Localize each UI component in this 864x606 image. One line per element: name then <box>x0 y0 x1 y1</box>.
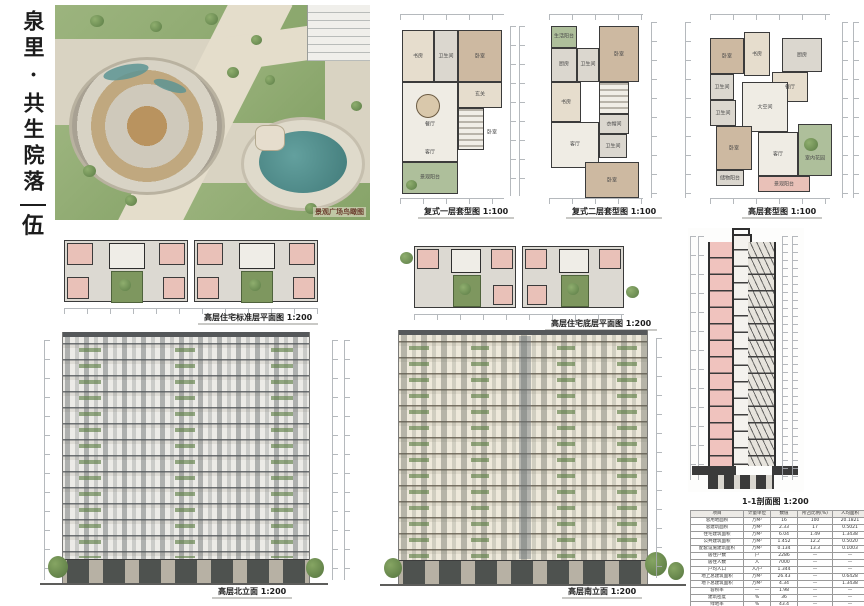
room <box>599 249 621 269</box>
room <box>525 249 547 269</box>
elevation-south <box>398 330 648 585</box>
table-cell: % <box>744 602 771 606</box>
tree <box>83 165 96 177</box>
section-caption: 1-1剖面图 1:200 <box>742 496 809 507</box>
table-cell: 人/户 <box>744 567 771 574</box>
table-cell: 万M² <box>744 546 771 553</box>
ground-line <box>40 583 328 585</box>
table-cell: 43.4 <box>771 602 798 606</box>
dining-table <box>416 94 440 118</box>
title-divider <box>20 204 46 206</box>
unit-block <box>522 246 624 308</box>
table-cell: 26.43 <box>771 574 798 581</box>
unit-plan-duplex1: 书房 卫生间 卧室 餐厅 玄关 卧室 客厅 景观阳台 <box>392 12 524 204</box>
tree <box>406 180 417 190</box>
table-header: 项目 <box>691 511 744 518</box>
room <box>159 243 185 265</box>
board-title: 泉里·共生院落 伍 <box>10 8 56 240</box>
dimension-rail <box>344 340 350 580</box>
table-cell: — <box>833 588 864 595</box>
table-row: 居住人数人7000—— <box>691 560 864 567</box>
dimension-rail <box>782 236 788 480</box>
table-cell: — <box>798 581 833 588</box>
table-cell: 配套设施建筑面积 <box>691 546 744 553</box>
table-row: 户均人口人/户1.344—— <box>691 567 864 574</box>
room-label: 卫生间 <box>605 143 620 150</box>
table-cell: — <box>833 567 864 574</box>
room-label: 书房 <box>752 51 762 58</box>
room-label: 客厅 <box>773 151 783 158</box>
tree <box>400 252 413 264</box>
plan-caption: 高层套型图 1:100 <box>742 206 822 217</box>
table-cell: 12.2 <box>798 539 833 546</box>
room-label: 玄关 <box>475 91 485 98</box>
tree <box>306 558 324 578</box>
table-header: 所占比例(%) <box>798 511 833 518</box>
room-label: 卧室 <box>475 53 485 60</box>
table-cell: 0.5021 <box>833 525 864 532</box>
tree <box>249 279 261 291</box>
tree <box>351 101 362 111</box>
room-label: 书房 <box>413 53 423 60</box>
table-cell: 户 <box>744 553 771 560</box>
table-cell: 1.344 <box>771 567 798 574</box>
table-row: 绿地率%43.4—— <box>691 602 864 606</box>
table-cell: 地上总建筑面积 <box>691 574 744 581</box>
table-cell: 17 <box>798 525 833 532</box>
indicator-table: 项目 计量单位 数值 所占比例(%) 人均面积 总用地面积万M²1610020.… <box>690 510 864 606</box>
table-header-row: 项目 计量单位 数值 所占比例(%) 人均面积 <box>691 511 864 518</box>
table-cell: 0.134 <box>771 546 798 553</box>
room-label: 卫生间 <box>438 53 453 60</box>
room-label: 卫生间 <box>580 61 595 68</box>
room <box>197 277 219 299</box>
dimension-rail <box>685 22 691 198</box>
room-label: 客厅 <box>425 149 435 156</box>
table-row: 建筑密度%36—— <box>691 595 864 602</box>
tree <box>668 562 684 580</box>
dimension-rail <box>519 26 525 196</box>
room-label: 大空间 <box>757 104 772 111</box>
aerial-view: 景观广场鸟瞰图 <box>55 5 370 220</box>
table-cell: 16 <box>771 518 798 525</box>
room-label: 景观阳台 <box>420 174 440 181</box>
table-cell: 居住人数 <box>691 560 744 567</box>
plant-column <box>79 338 101 558</box>
unit-block <box>64 240 188 302</box>
room <box>163 277 185 299</box>
tree <box>48 556 68 578</box>
table-header: 数值 <box>771 511 798 518</box>
table-cell: 居住户数 <box>691 553 744 560</box>
tree <box>265 75 275 85</box>
table-cell: 6.04 <box>771 532 798 539</box>
roof-parapet <box>732 228 750 236</box>
dimension-rail <box>400 14 504 20</box>
section-units <box>708 242 734 466</box>
table-row: 地上总建筑面积万M²26.43—0.6428 <box>691 574 864 581</box>
tree <box>251 35 262 45</box>
table-row: 居住户数户2286—— <box>691 553 864 560</box>
foundation-piers <box>708 475 774 489</box>
board-title-number: 伍 <box>22 208 44 240</box>
aerial-caption: 景观广场鸟瞰图 <box>313 207 366 217</box>
room-label: 餐厅 <box>425 121 435 128</box>
table-cell: 万M² <box>744 525 771 532</box>
table-cell: 建筑密度 <box>691 595 744 602</box>
tree <box>384 558 402 578</box>
dimension-rail <box>332 340 338 580</box>
table-cell: 1.452 <box>771 539 798 546</box>
table-cell: 地下总建筑面积 <box>691 581 744 588</box>
dimension-rail <box>842 22 848 198</box>
table-row: 住宅建筑面积万M²6.041.491.3438 <box>691 532 864 539</box>
room <box>293 277 315 299</box>
room-label: 衣帽间 <box>606 121 621 128</box>
tree <box>459 283 471 295</box>
board-title-text: 泉里·共生院落 <box>18 10 48 196</box>
room-label: 客厅 <box>570 141 580 148</box>
table-cell: 0.6428 <box>833 574 864 581</box>
plant-column <box>471 336 489 559</box>
room-label: 卧室 <box>487 129 497 136</box>
table-cell: 1.3438 <box>833 532 864 539</box>
elevation-north <box>62 332 310 584</box>
table-header: 计量单位 <box>744 511 771 518</box>
room <box>197 243 223 265</box>
tree <box>227 67 239 78</box>
plan-caption: 高层住宅底层平面图 1:200 <box>545 318 657 329</box>
unit-plan-duplex2: 生活阳台 厨房 卫生间 卧室 书房 客厅 衣帽间 卫生间 卧室 <box>545 12 695 204</box>
tree <box>150 21 162 32</box>
table-cell: 1.98 <box>771 588 798 595</box>
table-cell: 万M² <box>744 581 771 588</box>
stairs <box>458 108 484 150</box>
table-cell: 容积率 <box>691 588 744 595</box>
table-cell: — <box>798 602 833 606</box>
dimension-rail <box>853 22 859 198</box>
dimension-rail <box>44 340 50 580</box>
unit-block <box>414 246 516 308</box>
elevation-roof <box>399 330 647 335</box>
room-label: 室内花园 <box>805 155 825 162</box>
dimension-rail <box>710 198 830 204</box>
room-label: 卧室 <box>729 145 739 152</box>
table-cell: 公共建筑面积 <box>691 539 744 546</box>
foundation <box>692 466 736 475</box>
unit-block <box>194 240 318 302</box>
stair-core <box>451 249 481 273</box>
table-cell: — <box>833 553 864 560</box>
table-cell: 绿地率 <box>691 602 744 606</box>
stairs <box>599 82 629 114</box>
room <box>417 249 439 269</box>
room-label: 餐厅 <box>785 84 795 91</box>
dimension-rail <box>400 198 504 204</box>
table-cell: — <box>798 574 833 581</box>
table-row: 总建筑面积万M²2.33170.5021 <box>691 525 864 532</box>
table-cell: 7000 <box>771 560 798 567</box>
table-cell: 总建筑面积 <box>691 525 744 532</box>
room-label: 卫生间 <box>715 110 730 117</box>
room-label: 生活阳台 <box>554 33 574 40</box>
table-cell: 0.5020 <box>833 539 864 546</box>
table-cell: 万M² <box>744 532 771 539</box>
table-cell: 1.49 <box>798 532 833 539</box>
table-cell: — <box>833 602 864 606</box>
table-row: 公共建筑面积万M²1.45212.20.5020 <box>691 539 864 546</box>
room-label: 景观阳台 <box>774 181 794 188</box>
table-cell: — <box>798 595 833 602</box>
table-row: 总用地面积万M²1610020.1821 <box>691 518 864 525</box>
stair-core <box>559 249 589 273</box>
elevation-roof <box>63 332 309 337</box>
table-cell: 36 <box>771 595 798 602</box>
table-cell: 万M² <box>744 518 771 525</box>
table-cell: — <box>833 595 864 602</box>
plant-column <box>175 338 195 558</box>
table-cell: — <box>744 588 771 595</box>
room <box>67 277 89 299</box>
table-cell: 户均人口 <box>691 567 744 574</box>
room-label: 储物阳台 <box>720 175 740 182</box>
dimension-rail <box>656 338 662 578</box>
presentation-board: 泉里·共生院落 伍 景观广场鸟瞰图 <box>0 0 864 606</box>
stair-core-glass <box>519 336 531 559</box>
dimension-rail <box>510 26 516 196</box>
dimension-rail <box>549 14 643 20</box>
table-cell: 住宅建筑面积 <box>691 532 744 539</box>
table-cell: — <box>833 560 864 567</box>
dimension-rail <box>651 22 657 198</box>
elevation-base <box>63 559 309 584</box>
table-cell: 13.3 <box>798 546 833 553</box>
table-cell: 总用地面积 <box>691 518 744 525</box>
elevation-caption: 高层南立面 1:200 <box>562 586 642 597</box>
room-label: 卧室 <box>607 177 617 184</box>
plant-column <box>271 338 293 558</box>
plant-column <box>557 336 575 559</box>
plan-caption: 复式二层套型图 1:100 <box>566 206 662 217</box>
plan-caption: 复式一层套型图 1:100 <box>418 206 514 217</box>
elevation-base <box>399 560 647 585</box>
plan-caption: 高层住宅标准层平面图 1:200 <box>198 312 318 323</box>
section-drawing <box>688 228 804 492</box>
table-cell: 万M² <box>744 539 771 546</box>
elevation-caption: 高层北立面 1:200 <box>212 586 292 597</box>
dimension-rail <box>690 236 696 480</box>
table-cell: 100 <box>798 518 833 525</box>
table-cell: — <box>798 588 833 595</box>
table-row: 配套设施建筑面积万M²0.13413.30.1003 <box>691 546 864 553</box>
room-label: 厨房 <box>559 61 569 68</box>
dimension-rail <box>710 14 830 20</box>
tree <box>90 15 104 27</box>
table-cell: 4.34 <box>771 581 798 588</box>
floor-plan-standard <box>62 236 320 312</box>
indoor-garden <box>798 124 832 176</box>
tree <box>119 279 131 291</box>
floor-plan-ground <box>400 242 640 318</box>
table-cell: 2286 <box>771 553 798 560</box>
plant-column <box>409 336 429 559</box>
stair-core <box>109 243 145 269</box>
dimension-rail <box>549 198 643 204</box>
table-cell: — <box>798 553 833 560</box>
table-cell: — <box>798 567 833 574</box>
stair-core <box>239 243 275 269</box>
tree <box>205 13 218 25</box>
table-cell: 1.3438 <box>833 581 864 588</box>
table-header: 人均面积 <box>833 511 864 518</box>
tower-building <box>307 5 370 61</box>
tree <box>567 283 579 295</box>
room-label: 厨房 <box>797 52 807 59</box>
table-cell: 人 <box>744 560 771 567</box>
table-row: 容积率—1.98—— <box>691 588 864 595</box>
room <box>493 285 513 305</box>
table-cell: 万M² <box>744 574 771 581</box>
dimension-rail <box>698 236 704 480</box>
table-cell: 0.1003 <box>833 546 864 553</box>
tree <box>804 138 818 151</box>
room-label: 卧室 <box>722 53 732 60</box>
room-label: 卧室 <box>614 51 624 58</box>
section-stairs <box>748 242 776 466</box>
tree <box>626 286 639 298</box>
table-cell: — <box>798 560 833 567</box>
table-cell: % <box>744 595 771 602</box>
dimension-rail <box>792 236 798 480</box>
unit-plan-highrise: 卧室 书房 厨房 餐厅 卫生间 卫生间 卧室 大空间 客厅 室内花园 储物阳台 … <box>702 12 862 204</box>
room-label: 书房 <box>561 99 571 106</box>
room <box>67 243 93 265</box>
room <box>491 249 513 269</box>
pond-sand-deck <box>255 125 285 151</box>
room <box>289 243 315 265</box>
room-label: 卫生间 <box>714 84 729 91</box>
room <box>527 285 547 305</box>
table-row: 地下总建筑面积万M²4.34—1.3438 <box>691 581 864 588</box>
plant-column <box>617 336 637 559</box>
table-cell: 2.33 <box>771 525 798 532</box>
table-cell: 20.1821 <box>833 518 864 525</box>
tree <box>125 195 137 206</box>
